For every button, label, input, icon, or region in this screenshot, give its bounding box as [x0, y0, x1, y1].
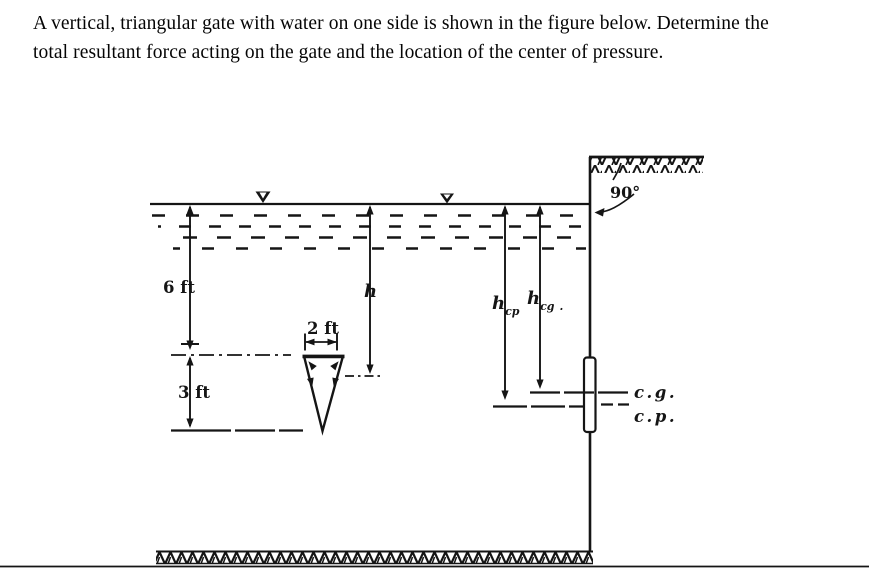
hcg-period: . [559, 300, 563, 313]
arrow-up-icon [501, 205, 508, 215]
dim-hcg: hcg. [527, 205, 563, 389]
cp-label: c.p. [634, 407, 677, 426]
arrow-left-icon [595, 208, 605, 217]
dim-h-label: h [364, 281, 377, 302]
hcg-base: h [527, 288, 540, 309]
arrow-down-icon [366, 365, 373, 375]
dim-3ft: 3 ft [178, 356, 210, 428]
angle-label: 90° [610, 183, 640, 202]
hcp-subscript: cp [505, 305, 520, 318]
dim-2ft-label: 2 ft [307, 319, 339, 338]
water-texture-dashes [152, 216, 586, 249]
arrow-right-icon [328, 339, 338, 346]
arrow-up-icon [186, 356, 193, 366]
arrow-up-icon [186, 205, 193, 215]
arrow-down-icon [186, 419, 193, 429]
arrow-up-icon [366, 205, 373, 215]
dim-h: h [364, 205, 377, 374]
gate-outline [304, 356, 343, 431]
dim-hcp: hcp [492, 205, 520, 400]
arrow-left-icon [305, 339, 315, 346]
dim-hcg-label: hcg. [527, 288, 563, 313]
triangular-gate [303, 356, 345, 431]
arrow-up-icon [536, 205, 543, 215]
cg-label: c.g. [634, 383, 677, 402]
arrow-down-icon [501, 391, 508, 401]
bottom-ground [156, 552, 593, 565]
arrow-down-icon [186, 341, 193, 351]
top-ground-hatch [590, 158, 703, 173]
water-surface-marker-left [256, 192, 271, 204]
top-ground [589, 157, 704, 173]
gate-side-view [584, 358, 596, 433]
arrow-down-icon [536, 380, 543, 390]
dim-2ft: 2 ft [305, 319, 339, 351]
hcg-subscript: cg [540, 300, 555, 313]
hydrostatics-figure: 6 ft 3 ft 2 ft h [0, 0, 869, 568]
dim-3ft-label: 3 ft [178, 383, 210, 402]
dim-6ft-label: 6 ft [163, 278, 195, 297]
water-surface-marker-right [440, 194, 454, 204]
bottom-ground-hatch [156, 552, 593, 564]
hcp-base: h [492, 293, 505, 314]
